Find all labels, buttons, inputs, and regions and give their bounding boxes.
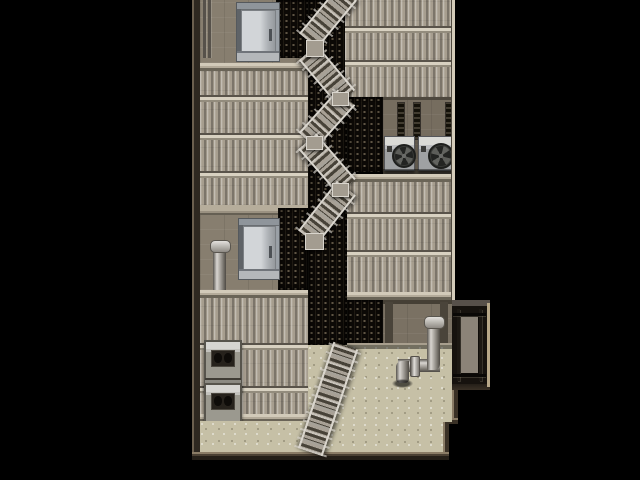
stair-landing [305, 233, 324, 250]
gate-bar [457, 309, 460, 381]
door-handle-icon [269, 246, 272, 258]
map-border-right-upper [452, 388, 458, 422]
door-frame-top [237, 3, 279, 10]
wall-vent-slot [413, 102, 421, 140]
stair-landing [332, 183, 349, 197]
machine-vent [211, 350, 235, 367]
roof-seam [200, 95, 308, 102]
door-threshold [239, 269, 279, 279]
roof-ledge [347, 174, 455, 182]
upper-right-roof [345, 0, 455, 97]
vent-grating-mid [278, 208, 308, 290]
wall-conduit-1 [203, 0, 206, 58]
roof-seam [200, 171, 308, 178]
roof-east-edge [451, 0, 455, 300]
door-frame-top [239, 219, 279, 226]
machine-fan-hole [214, 396, 222, 406]
map-edge-highlight-east [487, 303, 490, 387]
pipe-ground-shadow [392, 379, 413, 388]
gate-inner-panel [459, 315, 480, 375]
drain-pipe-cap [424, 316, 445, 329]
door-handle-icon [269, 29, 272, 41]
roof-seam [345, 26, 455, 33]
metal-door-north[interactable] [236, 2, 280, 62]
ac-fan-unit-1 [384, 136, 415, 171]
game-viewport[interactable] [0, 0, 640, 480]
ac-label-icon [387, 146, 392, 152]
roof-seam [200, 133, 308, 140]
ac-fan-unit-2 [418, 136, 453, 171]
mid-right-roof [347, 174, 455, 300]
machine-fan-hole [224, 353, 232, 363]
roof-ledge [200, 290, 308, 298]
stair-landing [332, 92, 349, 106]
ac-label-icon [421, 146, 426, 152]
map-border-left [192, 0, 200, 460]
roof-ledge [200, 63, 308, 71]
gate-bar [479, 309, 482, 381]
wall-pillar [385, 302, 393, 345]
door-threshold [237, 51, 279, 61]
machine-vent [211, 393, 235, 410]
gate-bar [453, 313, 486, 316]
machine-fan-hole [224, 396, 232, 406]
stair-landing [306, 40, 324, 57]
metal-gate-panel [452, 306, 487, 384]
machine-fan-hole [214, 353, 222, 363]
walkway-edge [347, 292, 455, 300]
roof-seam [345, 60, 455, 67]
roof-seam [347, 250, 455, 257]
pipe-flange [410, 356, 420, 377]
wall-vent-slot [397, 102, 405, 140]
map-border-under-panel [452, 384, 490, 390]
standpipe-cap [210, 240, 231, 253]
map-border-right-lower [443, 422, 449, 452]
wall-conduit-2 [208, 0, 211, 58]
roof-seam [347, 212, 455, 219]
ac-fan-icon [392, 144, 416, 168]
metal-door-mid[interactable] [238, 218, 280, 280]
vent-grating-south [347, 300, 383, 345]
stair-landing [306, 136, 323, 150]
courtyard-floor-west-strip [200, 421, 308, 452]
gate-bar [453, 374, 486, 377]
